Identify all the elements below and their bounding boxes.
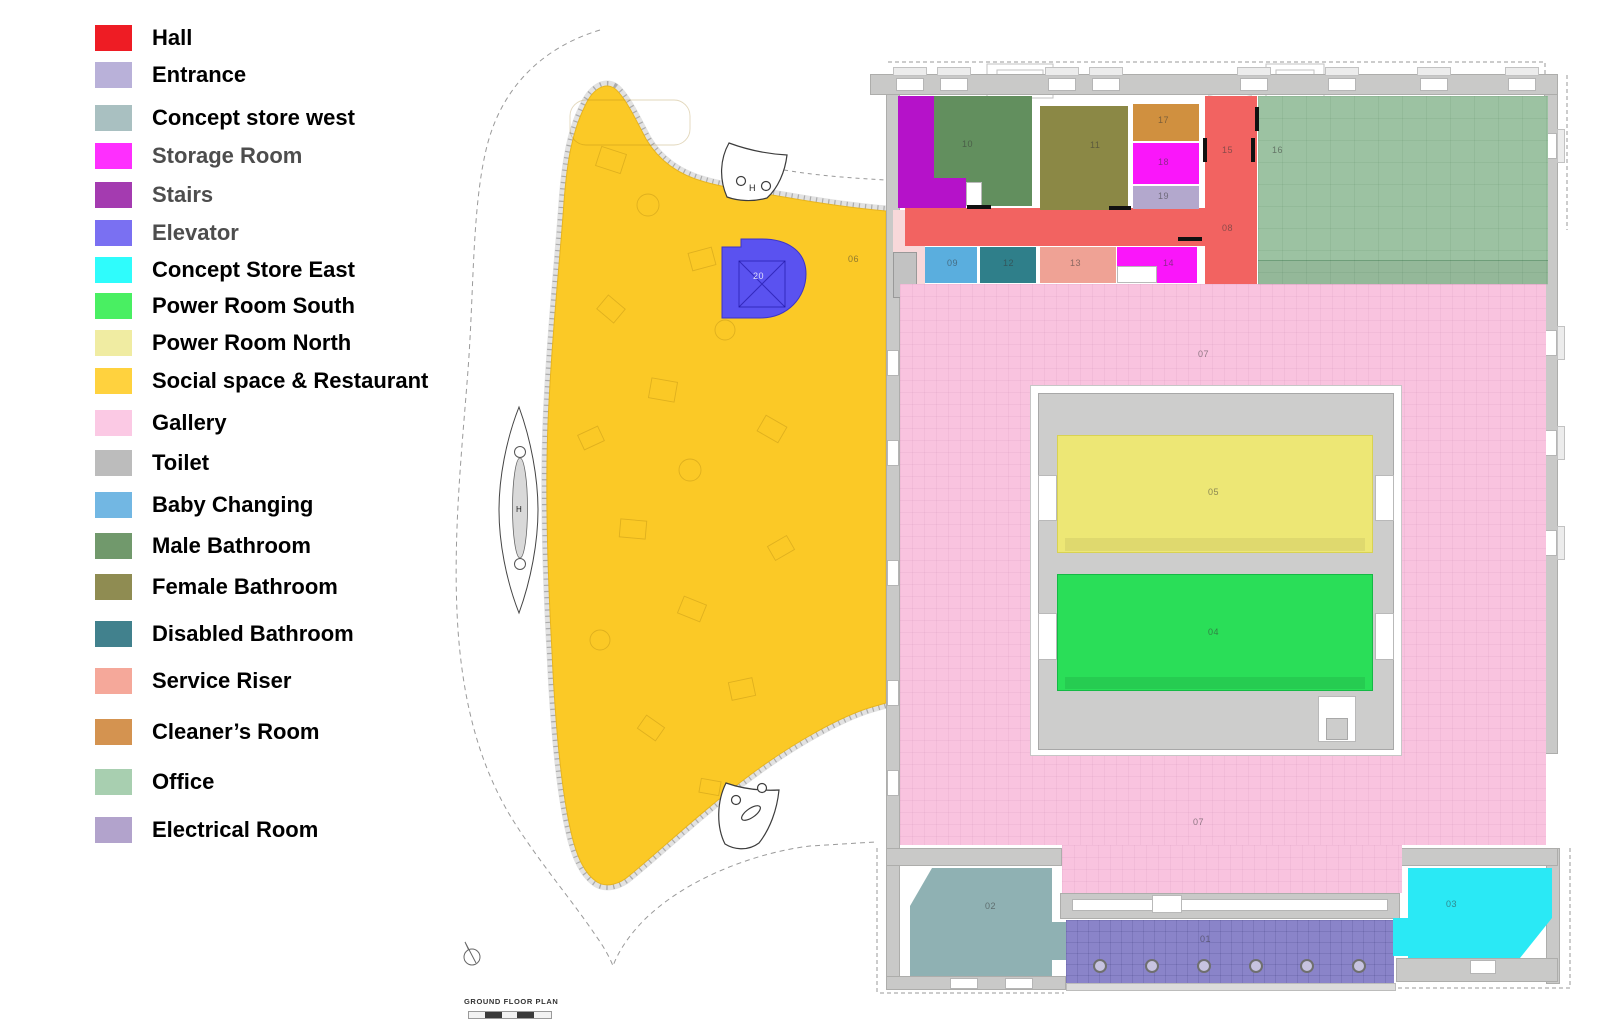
room-label: 18 <box>1158 158 1169 167</box>
door-tick <box>1178 237 1202 241</box>
h-marker-north: H <box>749 183 756 193</box>
south-canopy-pod <box>719 783 779 849</box>
window-slot <box>887 680 899 706</box>
room-label: 14 <box>1163 259 1174 268</box>
room-gallery-south <box>1062 845 1402 893</box>
legend-swatch <box>95 105 132 131</box>
legend-label: Electrical Room <box>152 817 318 843</box>
window-sill <box>1557 129 1565 163</box>
door-tick <box>1255 107 1259 131</box>
legend-label: Elevator <box>152 220 239 246</box>
entrance-column <box>1352 959 1366 973</box>
window-sill <box>1557 426 1565 460</box>
legend-label: Female Bathroom <box>152 574 338 600</box>
window-slot <box>1545 430 1557 456</box>
legend-swatch <box>95 62 132 88</box>
room-label: 07 <box>1193 818 1204 827</box>
storage-notch <box>1117 266 1157 283</box>
legend: Hall Entrance Concept store west Storage… <box>0 0 470 1035</box>
legend-label: Entrance <box>152 62 246 88</box>
room-entrance <box>1066 920 1394 983</box>
legend-swatch <box>95 330 132 356</box>
room-label: 09 <box>947 259 958 268</box>
scale-bar-segment <box>485 1012 502 1018</box>
room-concept-east-tab <box>1393 918 1408 956</box>
legend-label: Power Room North <box>152 330 351 356</box>
window-sill <box>1045 67 1079 76</box>
window-slot <box>887 350 899 376</box>
window-sill <box>1557 526 1565 560</box>
window-slot <box>1545 330 1557 356</box>
plan-title: GROUND FLOOR PLAN <box>464 997 558 1006</box>
room-hall-vertical <box>1205 96 1257 284</box>
room-label: 01 <box>1200 935 1211 944</box>
legend-swatch <box>95 492 132 518</box>
room-label: 02 <box>985 902 996 911</box>
window-slot <box>1005 978 1033 989</box>
core-opening <box>1038 613 1057 660</box>
stair-lobby <box>966 182 982 206</box>
room-label: 11 <box>1090 141 1100 150</box>
core-opening <box>1375 475 1394 521</box>
office-counter-band <box>1258 260 1548 285</box>
room-label: 12 <box>1003 259 1014 268</box>
room-label: 15 <box>1222 146 1233 155</box>
legend-label: Baby Changing <box>152 492 313 518</box>
window-sill <box>1089 67 1123 76</box>
window-sill <box>937 67 971 76</box>
legend-label: Disabled Bathroom <box>152 621 354 647</box>
legend-swatch <box>95 533 132 559</box>
h-marker-west: H <box>516 505 522 514</box>
window-sill <box>1505 67 1539 76</box>
legend-label: Toilet <box>152 450 209 476</box>
core-lobby-block <box>1326 718 1348 740</box>
window-slot <box>896 78 924 91</box>
window-slot <box>1328 78 1356 91</box>
boundary-link-dashed <box>784 170 886 180</box>
window-slot <box>887 560 899 586</box>
room-concept-west-tab <box>1052 922 1066 960</box>
door-tick <box>1251 138 1255 162</box>
legend-swatch <box>95 817 132 843</box>
door-tick <box>1109 206 1131 210</box>
west-entrance-lens: H <box>499 407 538 613</box>
door-tick <box>1203 138 1207 162</box>
legend-label: Social space & Restaurant <box>152 368 428 394</box>
room-label: 13 <box>1070 259 1081 268</box>
legend-swatch <box>95 574 132 600</box>
legend-label: Stairs <box>152 182 213 208</box>
legend-swatch <box>95 368 132 394</box>
core-opening <box>1375 613 1394 660</box>
window-sill <box>1237 67 1271 76</box>
entrance-window-box <box>1152 895 1182 913</box>
window-slot <box>1545 530 1557 556</box>
legend-swatch <box>95 143 132 169</box>
room-social-space <box>547 86 886 885</box>
window-slot <box>1240 78 1268 91</box>
window-sill <box>1417 67 1451 76</box>
room-label: 20 <box>753 272 764 281</box>
room-label: 07 <box>1198 350 1209 359</box>
scale-bar-segment <box>517 1012 534 1018</box>
legend-label: Concept Store East <box>152 257 355 283</box>
legend-label: Gallery <box>152 410 227 436</box>
window-slot <box>940 78 968 91</box>
legend-swatch <box>95 182 132 208</box>
window-slot <box>887 770 899 796</box>
window-sill <box>1557 326 1565 360</box>
room-concept-east <box>1408 868 1552 958</box>
room-concept-west <box>910 868 1052 976</box>
room-label: 04 <box>1208 628 1219 637</box>
legend-label: Concept store west <box>152 105 355 131</box>
core-opening <box>1038 475 1057 521</box>
legend-swatch <box>95 293 132 319</box>
legend-label: Service Riser <box>152 668 291 694</box>
power-north-plant-strip <box>1065 538 1365 551</box>
room-label: 16 <box>1272 146 1283 155</box>
wall-top <box>870 74 1558 95</box>
room-office <box>1258 96 1548 284</box>
room-label: 17 <box>1158 116 1169 125</box>
legend-swatch <box>95 410 132 436</box>
window-slot <box>1420 78 1448 91</box>
room-label: 10 <box>962 140 973 149</box>
legend-label: Power Room South <box>152 293 355 319</box>
legend-label: Hall <box>152 25 192 51</box>
legend-swatch <box>95 769 132 795</box>
door-slot <box>1470 960 1496 974</box>
door-tick <box>967 205 991 209</box>
legend-swatch <box>95 450 132 476</box>
room-label: 19 <box>1158 192 1169 201</box>
scale-bar <box>468 1011 552 1019</box>
legend-swatch <box>95 25 132 51</box>
legend-label: Office <box>152 769 214 795</box>
legend-swatch <box>95 621 132 647</box>
window-sill <box>1325 67 1359 76</box>
room-label: 03 <box>1446 900 1457 909</box>
wall-band-west-store <box>886 848 1062 866</box>
entrance-column <box>1249 959 1263 973</box>
power-south-plant-strip <box>1065 677 1365 689</box>
pavement-entrance <box>1066 983 1396 991</box>
window-sill <box>893 67 927 76</box>
window-slot <box>1048 78 1076 91</box>
legend-swatch <box>95 257 132 283</box>
legend-label: Cleaner’s Room <box>152 719 320 745</box>
room-label: 06 <box>848 255 859 264</box>
legend-swatch <box>95 220 132 246</box>
window-slot <box>887 440 899 466</box>
room-female-bathroom <box>1040 106 1128 210</box>
room-label: 05 <box>1208 488 1219 497</box>
legend-swatch <box>95 719 132 745</box>
window-slot <box>1508 78 1536 91</box>
room-label: 08 <box>1222 224 1233 233</box>
entrance-column <box>1197 959 1211 973</box>
room-stairs-horizontal <box>898 178 966 208</box>
wall-band-entrance-glazing <box>1072 899 1388 911</box>
room-hall-horizontal <box>905 208 1257 246</box>
entrance-column <box>1145 959 1159 973</box>
legend-swatch <box>95 668 132 694</box>
wall-band-east-store <box>1400 848 1558 866</box>
legend-label: Male Bathroom <box>152 533 311 559</box>
entrance-column <box>1300 959 1314 973</box>
window-slot <box>1092 78 1120 91</box>
entrance-column <box>1093 959 1107 973</box>
legend-label: Storage Room <box>152 143 302 169</box>
window-slot <box>950 978 978 989</box>
